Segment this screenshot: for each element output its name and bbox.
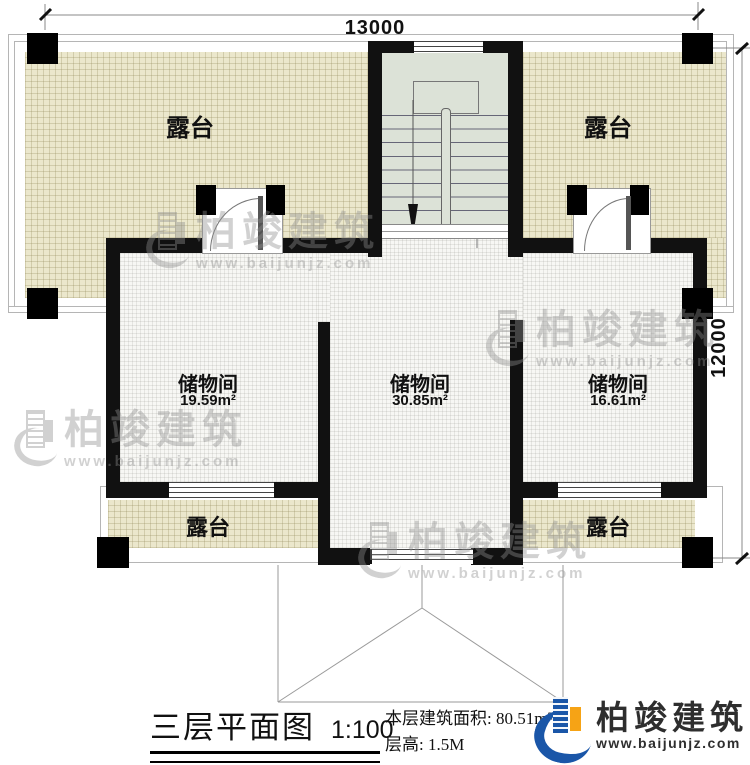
window [412, 41, 485, 53]
watermark-url: www.baijunjz.com [408, 565, 592, 582]
wall-segment [368, 41, 412, 53]
wall-segment [318, 322, 330, 565]
watermark-name: 柏竣建筑 [408, 522, 592, 562]
wall-segment [510, 482, 556, 498]
column [27, 33, 58, 64]
wall-segment [649, 238, 693, 253]
room-area: 19.59m² [148, 392, 268, 409]
brand-name: 柏竣建筑 [596, 701, 748, 736]
dimension-ticks [40, 9, 748, 564]
watermark-logo-icon [16, 410, 56, 464]
watermark-name: 柏竣建筑 [64, 410, 248, 450]
floor-plan-canvas: 露台 露台 储物间 19.59m² 储物间 30.85m² 储物间 16.61m… [0, 0, 750, 765]
footer-title-block: 三层平面图 1:100 [150, 702, 394, 763]
column [682, 33, 713, 64]
wall-segment [481, 41, 523, 53]
watermark-name: 柏竣建筑 [196, 212, 380, 252]
footer-info-block: 本层建筑面积: 80.51m² 层高: 1.5M [385, 706, 553, 759]
footer-area: 本层建筑面积: 80.51m² [385, 706, 553, 732]
room-label: 露台 [130, 108, 250, 143]
wall-segment [659, 482, 707, 498]
wall-segment [272, 482, 330, 498]
brand-logo-icon [536, 697, 590, 755]
window [167, 482, 276, 498]
door-right-leaf [626, 196, 631, 250]
brand-url: www.baijunjz.com [596, 735, 748, 751]
wall-segment [508, 41, 523, 257]
dimension-lines [45, 2, 750, 558]
door-right-jamb [567, 185, 587, 215]
watermark: 柏竣建筑 www.baijunjz.com [488, 310, 720, 370]
watermark-logo-icon [148, 212, 188, 266]
column [97, 537, 129, 568]
watermark: 柏竣建筑 www.baijunjz.com [148, 212, 380, 272]
title-underline [150, 751, 380, 763]
watermark-logo-icon [488, 310, 528, 364]
footer-title: 三层平面图 [150, 702, 315, 747]
watermark-logo-icon [360, 522, 400, 576]
footer-floor-height: 层高: 1.5M [385, 732, 553, 758]
room-label: 露台 [148, 510, 268, 542]
watermark: 柏竣建筑 www.baijunjz.com [360, 522, 592, 582]
wall-segment [106, 482, 167, 498]
watermark-name: 柏竣建筑 [536, 310, 720, 350]
room-area: 30.85m² [360, 392, 480, 409]
roof-outline [278, 565, 563, 702]
watermark-url: www.baijunjz.com [64, 453, 248, 470]
column [682, 537, 713, 568]
column [27, 288, 58, 319]
window [556, 482, 663, 498]
dimension-top-label: 13000 [315, 17, 435, 40]
watermark-url: www.baijunjz.com [196, 255, 380, 272]
watermark-url: www.baijunjz.com [536, 353, 720, 370]
watermark: 柏竣建筑 www.baijunjz.com [16, 410, 248, 470]
brand-block: 柏竣建筑 www.baijunjz.com [536, 697, 748, 755]
stair-threshold [382, 224, 508, 239]
room-label: 露台 [548, 108, 668, 143]
room-area: 16.61m² [558, 392, 678, 409]
door-right-jamb [630, 185, 649, 215]
